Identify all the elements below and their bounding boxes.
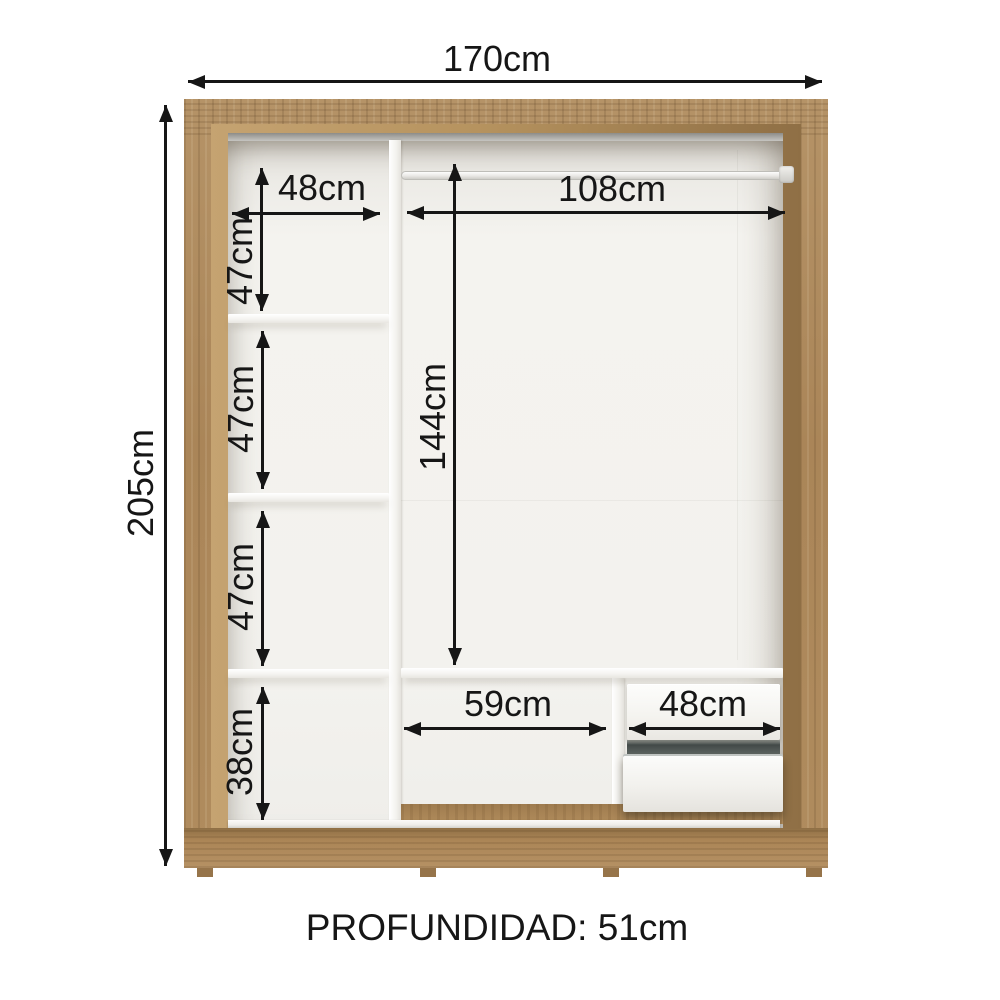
dim-label-left-section-2: 47cm bbox=[223, 365, 259, 453]
dim-label-left-shelf-width: 48cm bbox=[278, 170, 366, 206]
drawer-open-slot bbox=[627, 740, 780, 754]
drawer-front-open bbox=[623, 754, 783, 812]
wardrobe-dimension-diagram: 170cm 205cm 48cm 47cm 47cm 47cm 38cm 108… bbox=[0, 0, 1000, 1000]
rod-mount bbox=[779, 166, 794, 183]
dim-arrow-hanging-height bbox=[453, 164, 456, 665]
dim-label-left-section-4: 38cm bbox=[222, 708, 258, 796]
dim-arrow-left-section-4 bbox=[261, 687, 264, 820]
foot bbox=[420, 868, 436, 877]
left-shelf-2 bbox=[228, 493, 389, 502]
foot bbox=[603, 868, 619, 877]
dim-arrow-bottom-middle-width bbox=[404, 727, 606, 730]
depth-label: PROFUNDIDAD: 51cm bbox=[306, 907, 688, 949]
foot bbox=[806, 868, 822, 877]
dim-arrow-rod-span bbox=[407, 211, 785, 214]
dim-label-drawer-width: 48cm bbox=[659, 686, 747, 722]
dim-arrow-left-section-3 bbox=[261, 511, 264, 666]
left-shelf-1 bbox=[228, 314, 389, 323]
dim-arrow-total-width bbox=[188, 80, 822, 83]
dim-arrow-left-shelf-width bbox=[232, 212, 380, 215]
main-bottom-shelf bbox=[401, 668, 783, 678]
top-sliding-track bbox=[228, 133, 783, 141]
dim-label-bottom-middle-width: 59cm bbox=[464, 686, 552, 722]
dim-arrow-total-height bbox=[164, 105, 167, 866]
dim-label-hanging-height: 144cm bbox=[415, 363, 451, 471]
left-divider-panel bbox=[389, 140, 401, 830]
base-panel bbox=[184, 828, 828, 868]
dim-arrow-left-section-1 bbox=[260, 168, 263, 311]
back-seam-vertical bbox=[737, 150, 738, 660]
foot bbox=[197, 868, 213, 877]
dim-arrow-left-section-2 bbox=[261, 331, 264, 489]
dim-label-left-section-3: 47cm bbox=[223, 543, 259, 631]
dim-label-left-section-1: 47cm bbox=[222, 217, 258, 305]
dim-label-total-width: 170cm bbox=[443, 41, 551, 77]
dim-label-rod-span: 108cm bbox=[558, 171, 666, 207]
dim-arrow-drawer-width bbox=[629, 727, 780, 730]
left-shelf-3 bbox=[228, 669, 389, 678]
back-seam-horizontal bbox=[401, 500, 783, 501]
dim-label-total-height: 205cm bbox=[123, 429, 159, 537]
